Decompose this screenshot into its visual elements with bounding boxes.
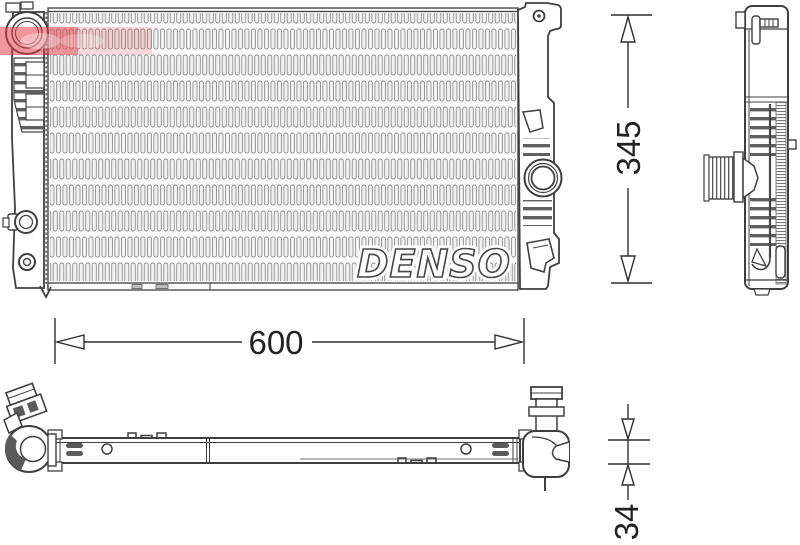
side-bottom-clip xyxy=(776,246,785,278)
slot-pill xyxy=(66,443,83,448)
dimension-depth: 34 xyxy=(608,404,650,540)
pipe-flange xyxy=(529,407,564,416)
side-connector-cap xyxy=(704,155,709,201)
mount-screw-center xyxy=(537,14,541,18)
slot-pill xyxy=(492,443,509,448)
arrow-right-icon xyxy=(495,335,522,349)
arrow-down-icon xyxy=(621,256,635,281)
side-connector-flange xyxy=(734,152,743,202)
side-rib-band-lower xyxy=(750,198,776,246)
side-top-tab xyxy=(736,12,745,28)
arrow-down-icon xyxy=(622,419,634,439)
side-connector-ribs xyxy=(706,157,734,199)
slot-pill xyxy=(66,451,83,456)
top-left-bracket xyxy=(21,2,33,9)
denso-logo: DENSO xyxy=(357,242,511,286)
arrow-up-icon xyxy=(621,17,635,42)
dimension-height: 345 xyxy=(610,15,652,283)
right-tank xyxy=(518,3,562,289)
elbow-dome xyxy=(21,437,46,462)
drain-plug-stub xyxy=(3,218,9,227)
top-left-bracket xyxy=(6,3,20,12)
dim-height-value: 345 xyxy=(610,120,647,175)
drain-plug-inner xyxy=(20,216,33,229)
bottom-right-fitting xyxy=(523,387,569,491)
lower-ring-port-inner xyxy=(24,259,31,266)
watermark-text-blur xyxy=(20,33,60,49)
side-rib-band-upper xyxy=(750,106,776,156)
bottom-left-fitting xyxy=(2,382,56,472)
radiator-bottom-view xyxy=(2,382,569,491)
bar-hole xyxy=(102,444,112,454)
tank-rib-band-lower xyxy=(523,200,552,226)
dimension-width: 600 xyxy=(55,318,524,364)
bottom-bar-tab xyxy=(132,285,142,289)
elbow-connect xyxy=(48,434,56,466)
side-right-stub xyxy=(788,140,796,149)
side-top-pipe xyxy=(752,16,760,44)
watermark-text-blur xyxy=(60,34,104,48)
side-bottom-foot xyxy=(754,289,770,295)
dim-depth-value: 34 xyxy=(608,504,645,541)
arrow-left-icon xyxy=(57,335,84,349)
outlet-port-inner xyxy=(532,167,555,190)
bar-hole xyxy=(461,444,471,454)
drawing-canvas: DENSO DENSO 345 600 xyxy=(0,0,800,545)
arrow-up-icon xyxy=(622,465,634,485)
tank-rib-band-upper xyxy=(523,138,550,156)
dim-width-value: 600 xyxy=(248,324,303,361)
radiator-front-view: DENSO DENSO xyxy=(0,2,562,297)
technical-drawing-page: DENSO DENSO 345 600 xyxy=(0,0,800,545)
radiator-side-profile-view xyxy=(704,6,796,295)
bottom-bar-tab xyxy=(156,285,168,289)
slot-pill xyxy=(492,451,509,456)
watermark xyxy=(0,27,152,55)
